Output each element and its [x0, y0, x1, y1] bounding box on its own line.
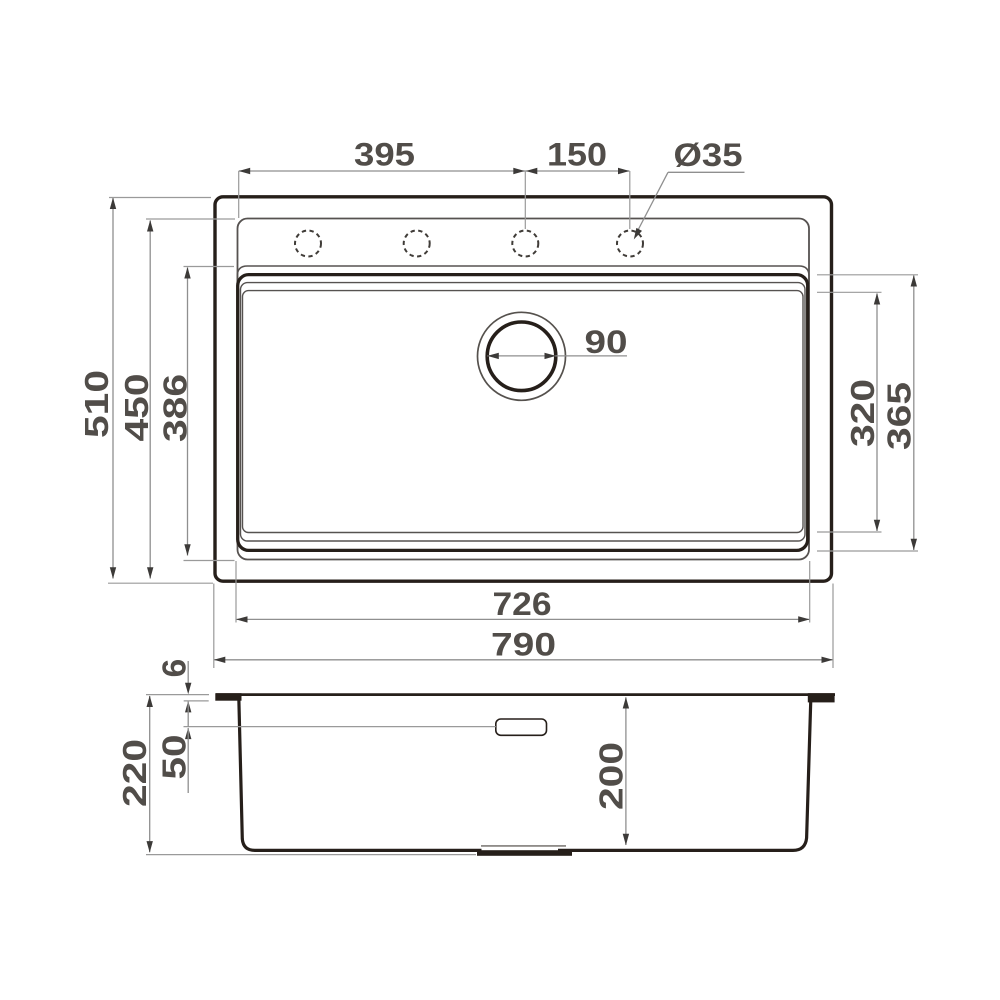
svg-text:220: 220	[117, 739, 154, 807]
svg-text:200: 200	[594, 742, 631, 810]
svg-text:Ø35: Ø35	[674, 137, 743, 173]
svg-text:320: 320	[845, 379, 882, 447]
svg-text:395: 395	[354, 137, 415, 173]
svg-text:365: 365	[882, 382, 919, 450]
svg-text:50: 50	[157, 735, 194, 780]
svg-text:90: 90	[585, 324, 628, 360]
svg-text:386: 386	[158, 374, 195, 442]
svg-text:450: 450	[119, 374, 156, 442]
svg-text:150: 150	[547, 137, 607, 173]
svg-text:6: 6	[157, 659, 194, 678]
svg-text:726: 726	[493, 586, 552, 622]
svg-text:510: 510	[79, 370, 116, 438]
svg-text:790: 790	[491, 627, 556, 663]
